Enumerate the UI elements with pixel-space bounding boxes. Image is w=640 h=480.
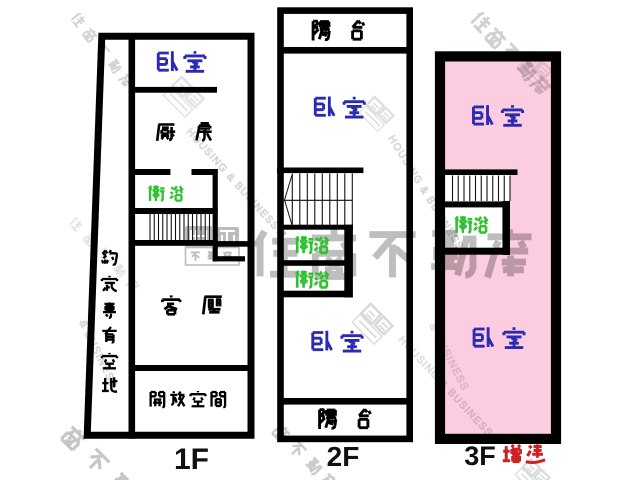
svg-text:3F: 3F [464, 441, 496, 471]
svg-text:2F: 2F [327, 441, 360, 472]
svg-text:HOUSING & BUSINESS: HOUSING & BUSINESS [184, 127, 281, 233]
svg-text:1F: 1F [174, 443, 209, 476]
